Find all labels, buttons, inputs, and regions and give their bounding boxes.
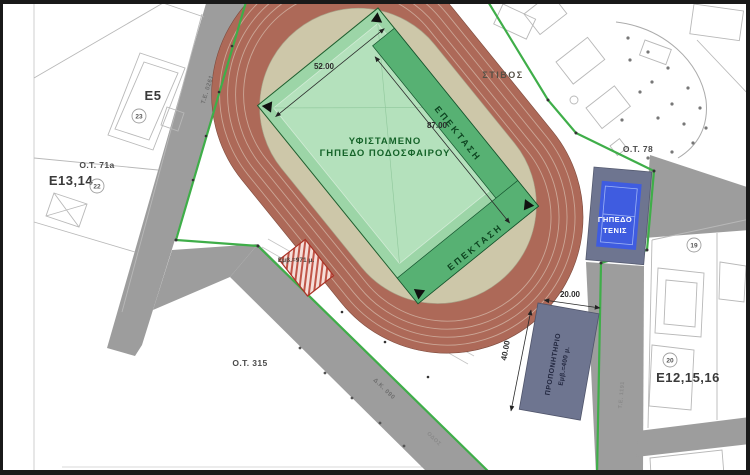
label-tennis-line2: ΤΕΝΙΣ bbox=[603, 226, 627, 235]
label-shed-area: Εμβ.=971 μ. bbox=[278, 257, 315, 264]
svg-text:19: 19 bbox=[690, 243, 698, 250]
label-track: ΣΤΙΒΟΣ bbox=[482, 70, 523, 80]
label-ot-78: O.T. 78 bbox=[623, 144, 653, 154]
label-existing-field-line1: ΥΦΙΣΤΑΜΕΝΟ bbox=[349, 136, 422, 147]
label-block-e5: E5 bbox=[145, 88, 162, 103]
dim-field-width: 52.00 bbox=[314, 62, 335, 71]
road-vertical-right bbox=[586, 262, 644, 475]
dim-field-length: 87.00 bbox=[427, 121, 448, 130]
label-block-e13-14: E13,14 bbox=[49, 173, 93, 188]
label-ot-315: O.T. 315 bbox=[232, 358, 267, 368]
label-ot-71a: O.T. 71a bbox=[79, 160, 114, 170]
label-block-e12-15-16: E12,15,16 bbox=[656, 370, 720, 385]
svg-text:23: 23 bbox=[135, 114, 143, 121]
svg-text:22: 22 bbox=[93, 184, 101, 191]
svg-text:20: 20 bbox=[666, 358, 674, 365]
dim-training-width: 20.00 bbox=[560, 290, 581, 299]
label-existing-field-line2: ΓΗΠΕΔΟ ΠΟΔΟΣΦΑΙΡΟΥ bbox=[320, 148, 451, 159]
site-plan-canvas: ΕΠΕΚΤΑΣΗ ΕΠΕΚΤΑΣΗ ΥΦΙΣΤΑΜΕΝΟ ΓΗΠΕΔ bbox=[0, 0, 750, 475]
site-plan-svg: ΕΠΕΚΤΑΣΗ ΕΠΕΚΤΑΣΗ ΥΦΙΣΤΑΜΕΝΟ ΓΗΠΕΔ bbox=[0, 0, 750, 475]
label-tennis-line1: ΓΗΠΕΔΟ bbox=[598, 215, 632, 224]
